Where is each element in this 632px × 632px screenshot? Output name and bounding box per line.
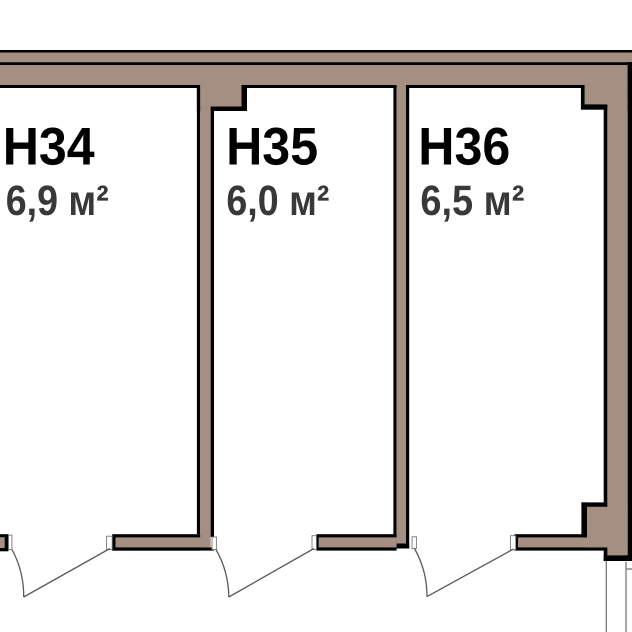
svg-text:H36: H36 — [418, 118, 510, 177]
svg-text:6,5 м²: 6,5 м² — [420, 178, 524, 225]
svg-text:6,9 м²: 6,9 м² — [6, 178, 109, 225]
svg-text:H34: H34 — [3, 118, 95, 177]
svg-text:H35: H35 — [226, 118, 318, 177]
svg-text:6,0 м²: 6,0 м² — [226, 178, 329, 225]
